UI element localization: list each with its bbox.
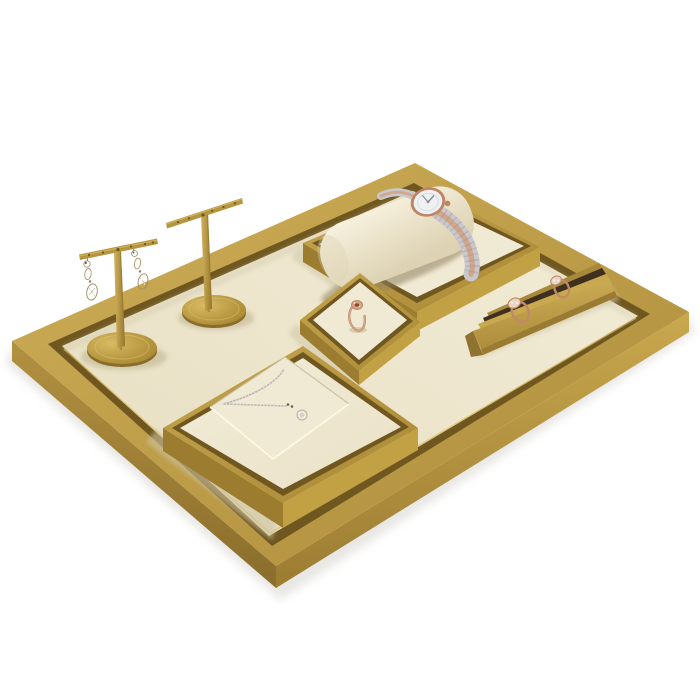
earring-accent [85, 262, 87, 264]
earring-stud [84, 261, 90, 267]
tbar-notch [152, 241, 154, 243]
tbar-notch [188, 217, 190, 219]
tbar-joint [116, 248, 119, 251]
tbar-notch [211, 210, 213, 212]
earring-connector [139, 270, 141, 272]
tbar-joint [201, 213, 204, 216]
sparkle-dot [89, 289, 91, 291]
sparkle-dot [141, 279, 143, 281]
tbar-notch [102, 251, 104, 253]
tbar-notch [177, 221, 179, 223]
sparkle-dot [304, 416, 305, 417]
earring-connector [89, 280, 91, 282]
ring-gem-center [355, 303, 360, 307]
earring-stud [132, 251, 138, 257]
jewelry-tray-photo [0, 0, 700, 700]
sparkle-dot [299, 412, 301, 414]
earring-left [84, 258, 99, 301]
sparkle-dot [93, 293, 95, 295]
tbar-notch [88, 254, 90, 256]
tbar-notch [144, 243, 146, 245]
sparkle-dot [359, 306, 360, 307]
tbar-notch [222, 206, 224, 208]
clasp-bead [291, 405, 294, 408]
earring-accent [133, 252, 135, 254]
photo-canvas [0, 0, 700, 700]
sparkle-dot [144, 283, 146, 285]
tbar-notch [234, 202, 236, 204]
sparkle-dot [354, 302, 356, 304]
earring-marquise [84, 268, 92, 280]
pendant-core [300, 413, 304, 417]
clasp-bead [287, 403, 290, 406]
earring-marquise [134, 258, 142, 270]
tbar-notch [130, 245, 132, 247]
